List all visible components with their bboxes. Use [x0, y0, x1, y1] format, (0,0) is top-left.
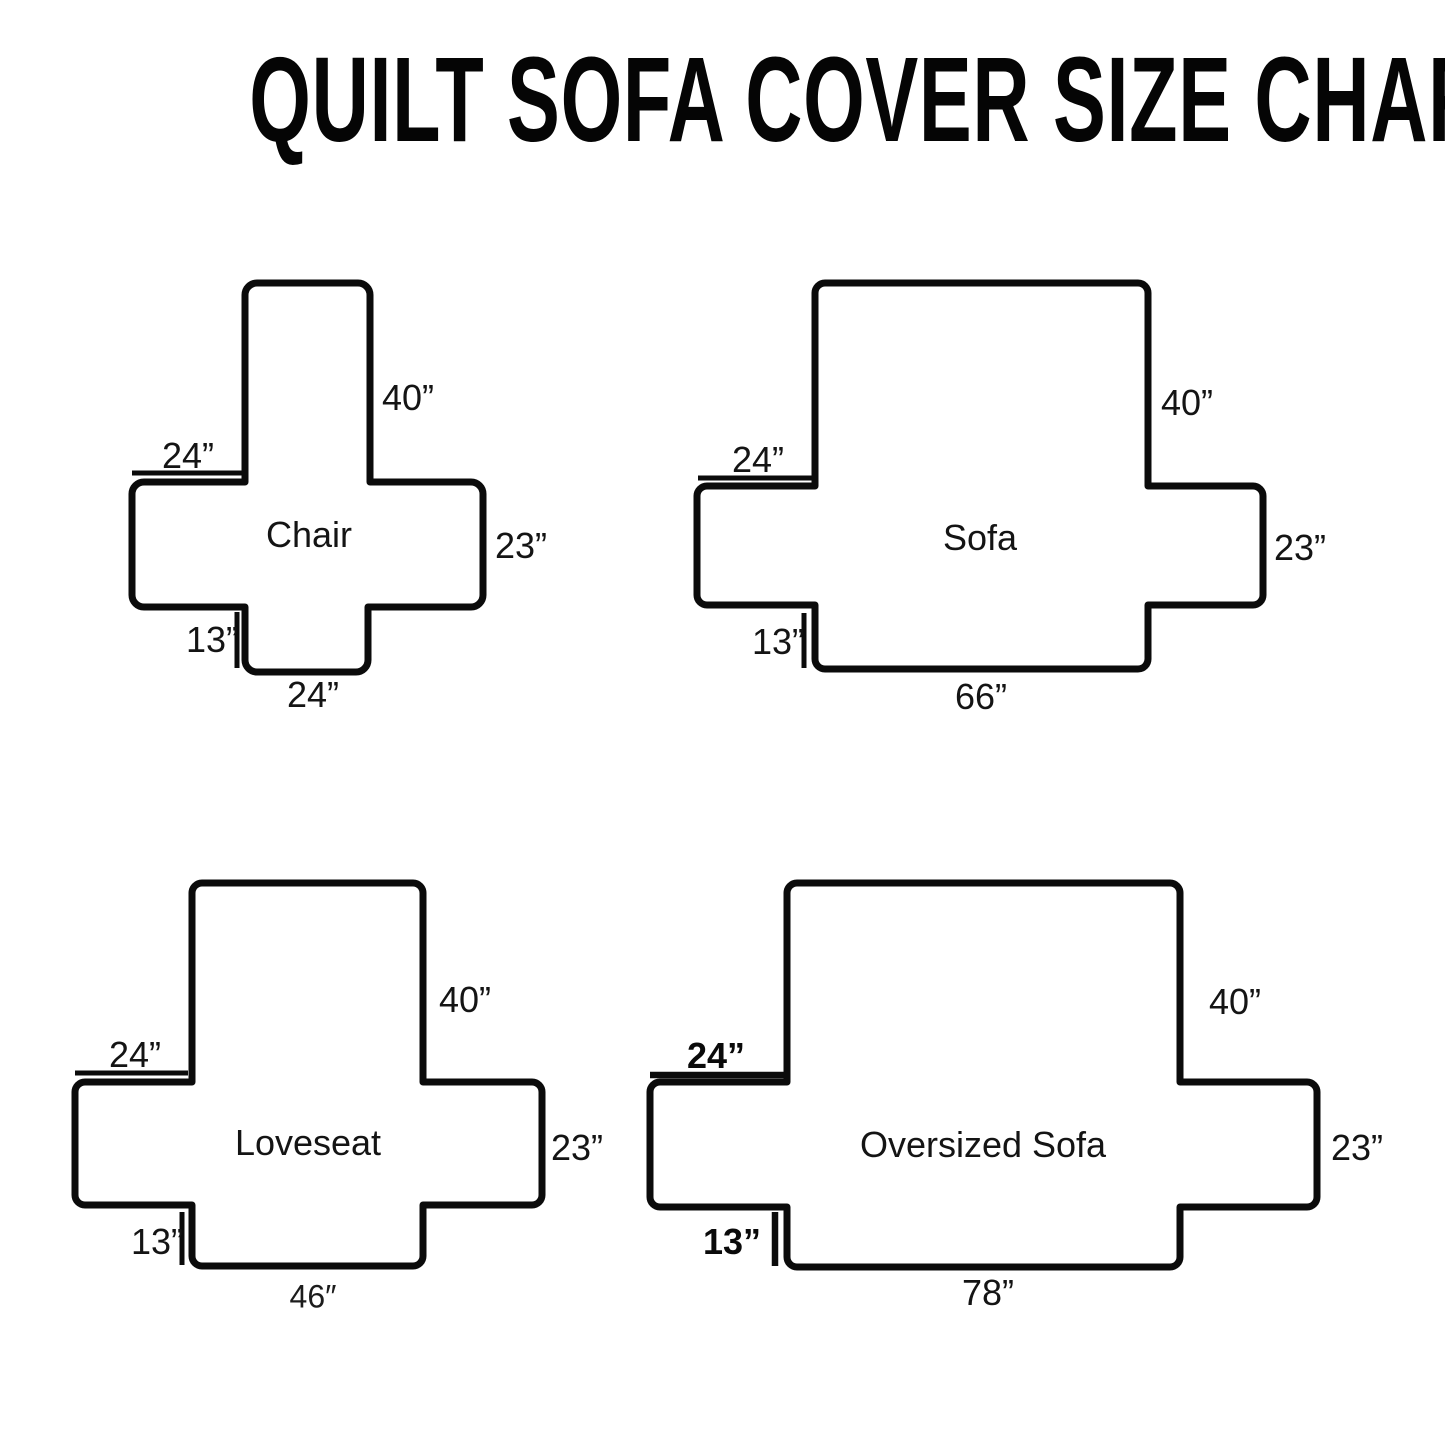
oversized-sofa-name-label: Oversized Sofa — [860, 1124, 1106, 1166]
oversized-sofa-back-height-label: 40” — [1209, 981, 1261, 1023]
sofa-seat-width-label: 66” — [955, 676, 1007, 718]
chair-cover-drawing — [100, 270, 560, 720]
chair-cover-outline — [132, 283, 483, 672]
page-title: QUILT SOFA COVER SIZE CHART — [249, 38, 1195, 160]
loveseat-back-height-label: 40” — [439, 979, 491, 1021]
sofa-arm-width-label: 24” — [732, 439, 784, 481]
loveseat-arm-width-label: 24” — [109, 1034, 161, 1076]
loveseat-name-label: Loveseat — [235, 1122, 381, 1164]
oversized-sofa-front-drop-label: 13” — [703, 1221, 761, 1263]
oversized-sofa-arm-width-label: 24” — [687, 1035, 745, 1077]
loveseat-front-drop-label: 13” — [131, 1221, 183, 1263]
diagram-oversized-sofa: 40” 24” Oversized Sofa 23” 13” 78” — [620, 870, 1410, 1330]
loveseat-side-height-label: 23” — [551, 1127, 603, 1169]
chair-seat-width-label: 24” — [287, 674, 339, 716]
diagram-sofa: 40” 24” Sofa 23” 13” 66” — [670, 270, 1370, 720]
diagram-chair: 40” 24” Chair 23” 13” 24” — [100, 270, 560, 720]
sofa-front-drop-label: 13” — [752, 621, 804, 663]
chair-name-label: Chair — [266, 514, 352, 556]
chair-side-height-label: 23” — [495, 525, 547, 567]
sofa-name-label: Sofa — [943, 517, 1017, 559]
sofa-side-height-label: 23” — [1274, 527, 1326, 569]
diagram-loveseat: 40” 24” Loveseat 23” 13” 46″ — [60, 870, 640, 1330]
chair-back-height-label: 40” — [382, 377, 434, 419]
oversized-sofa-side-height-label: 23” — [1331, 1127, 1383, 1169]
sofa-back-height-label: 40” — [1161, 382, 1213, 424]
chair-front-drop-label: 13” — [186, 619, 238, 661]
loveseat-seat-width-label: 46″ — [290, 1279, 337, 1316]
oversized-sofa-seat-width-label: 78” — [962, 1272, 1014, 1314]
chair-arm-width-label: 24” — [162, 435, 214, 477]
